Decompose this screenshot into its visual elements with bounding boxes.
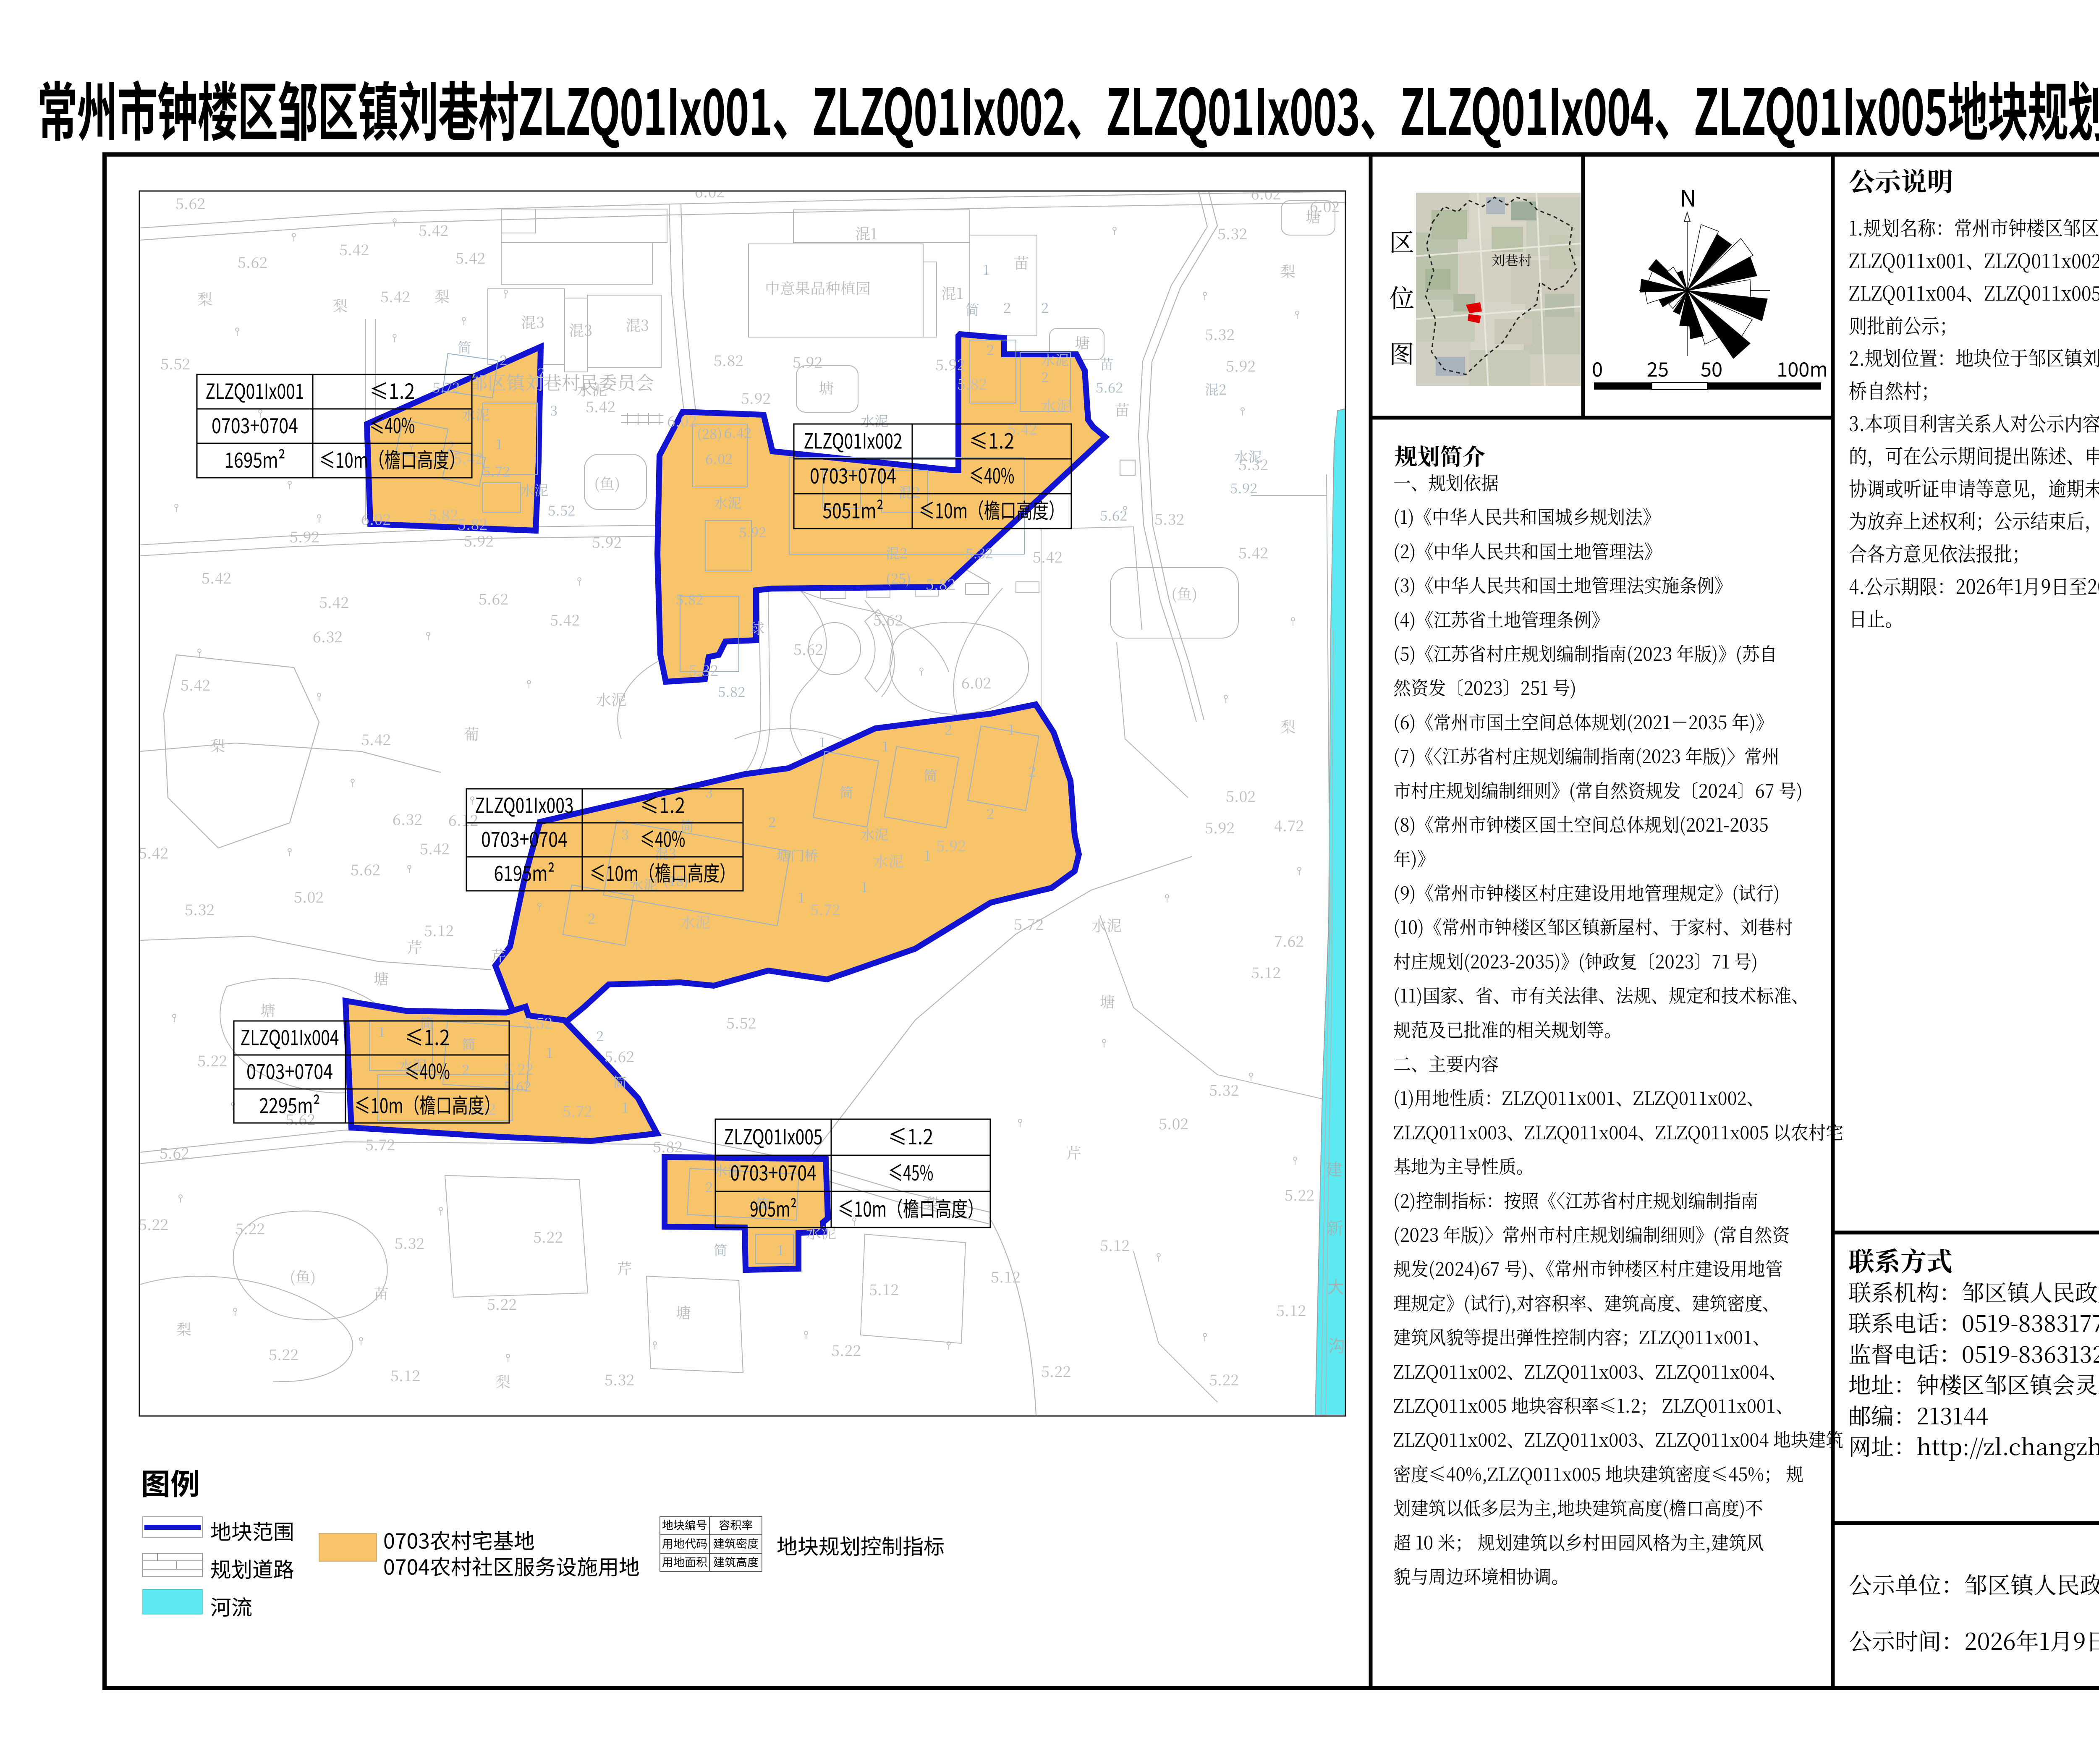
svg-text:5.52: 5.52 bbox=[523, 1012, 552, 1033]
svg-text:2: 2 bbox=[1003, 297, 1011, 317]
svg-text:苗: 苗 bbox=[1100, 354, 1114, 374]
svg-text:水泥: 水泥 bbox=[714, 492, 741, 512]
svg-text:水泥: 水泥 bbox=[1091, 914, 1122, 936]
svg-text:5.82: 5.82 bbox=[458, 513, 487, 534]
svg-text:0703+0704: 0703+0704 bbox=[810, 460, 896, 490]
svg-text:5.62: 5.62 bbox=[1096, 377, 1123, 397]
svg-text:6195m²: 6195m² bbox=[494, 857, 555, 887]
svg-text:5.22: 5.22 bbox=[1209, 1369, 1239, 1390]
svg-text:2: 2 bbox=[1041, 297, 1049, 317]
svg-text:5.92: 5.92 bbox=[793, 351, 822, 372]
svg-text:≤10m（檐口高度）: ≤10m（檐口高度） bbox=[354, 1089, 500, 1120]
svg-text:5.22: 5.22 bbox=[235, 1217, 265, 1239]
svg-text:5.82: 5.82 bbox=[428, 504, 458, 525]
svg-text:塘: 塘 bbox=[1100, 991, 1115, 1012]
svg-text:梨: 梨 bbox=[1280, 716, 1296, 737]
svg-text:5.42: 5.42 bbox=[455, 247, 485, 268]
svg-text:5.72: 5.72 bbox=[483, 461, 510, 481]
svg-text:5.42: 5.42 bbox=[139, 842, 168, 863]
svg-text:5.82: 5.82 bbox=[718, 681, 745, 701]
svg-text:水泥: 水泥 bbox=[873, 850, 903, 872]
svg-text:6.12: 6.12 bbox=[448, 809, 478, 830]
svg-text:2: 2 bbox=[1041, 366, 1049, 386]
svg-text:1: 1 bbox=[621, 1097, 629, 1117]
svg-text:5.12: 5.12 bbox=[424, 919, 454, 941]
svg-text:5051m²: 5051m² bbox=[823, 495, 884, 525]
svg-text:(鱼): (鱼) bbox=[1171, 583, 1197, 604]
svg-text:ZLZQ01Ix005: ZLZQ01Ix005 bbox=[724, 1120, 823, 1151]
svg-text:≤40%: ≤40% bbox=[370, 409, 415, 440]
svg-text:6.02: 6.02 bbox=[705, 448, 733, 468]
svg-text:5.92: 5.92 bbox=[290, 526, 319, 547]
svg-text:2: 2 bbox=[500, 350, 507, 369]
svg-text:5.42: 5.42 bbox=[1238, 542, 1268, 563]
svg-text:5.92: 5.92 bbox=[741, 387, 771, 408]
svg-text:5.42: 5.42 bbox=[361, 728, 391, 750]
svg-text:5.92: 5.92 bbox=[1226, 355, 1256, 376]
svg-text:水泥: 水泥 bbox=[861, 824, 888, 844]
svg-text:塘门桥: 塘门桥 bbox=[777, 845, 818, 865]
svg-text:1: 1 bbox=[546, 1042, 553, 1062]
svg-text:2: 2 bbox=[987, 803, 994, 823]
svg-text:水泥: 水泥 bbox=[521, 480, 548, 500]
svg-text:0703+0704: 0703+0704 bbox=[730, 1157, 817, 1187]
svg-text:简: 简 bbox=[613, 1072, 627, 1091]
svg-text:1: 1 bbox=[378, 1021, 385, 1041]
svg-text:水泥: 水泥 bbox=[596, 688, 626, 710]
svg-text:混2: 混2 bbox=[898, 482, 920, 502]
svg-text:6.32: 6.32 bbox=[313, 626, 343, 647]
svg-text:梨: 梨 bbox=[495, 1371, 510, 1392]
svg-text:5.42: 5.42 bbox=[1033, 546, 1063, 567]
svg-text:2: 2 bbox=[768, 811, 776, 831]
svg-text:3: 3 bbox=[705, 782, 713, 802]
svg-text:ZLZQ01Ix001: ZLZQ01Ix001 bbox=[206, 375, 304, 405]
svg-text:5.22: 5.22 bbox=[533, 1226, 563, 1247]
svg-text:2: 2 bbox=[945, 719, 952, 739]
svg-text:混3: 混3 bbox=[569, 319, 592, 340]
svg-text:5.32: 5.32 bbox=[1209, 1079, 1239, 1100]
svg-text:2: 2 bbox=[596, 1026, 604, 1045]
svg-text:ZLZQ01Ix002: ZLZQ01Ix002 bbox=[804, 425, 903, 455]
svg-text:5.32: 5.32 bbox=[1217, 222, 1247, 244]
svg-text:球: 球 bbox=[749, 617, 764, 639]
svg-text:1: 1 bbox=[819, 732, 826, 751]
svg-text:4.72: 4.72 bbox=[1274, 814, 1304, 836]
svg-text:≤10m（檐口高度）: ≤10m（檐口高度） bbox=[838, 1193, 984, 1223]
svg-text:5.92: 5.92 bbox=[1230, 478, 1257, 497]
svg-text:5.22: 5.22 bbox=[487, 1293, 517, 1314]
svg-text:5.92: 5.92 bbox=[592, 531, 622, 552]
svg-text:水泥: 水泥 bbox=[1234, 446, 1262, 466]
svg-text:6.02: 6.02 bbox=[361, 508, 391, 529]
svg-text:7.62: 7.62 bbox=[1274, 930, 1304, 951]
svg-text:水泥: 水泥 bbox=[462, 404, 489, 424]
svg-text:梨: 梨 bbox=[210, 735, 225, 756]
svg-text:5.82: 5.82 bbox=[676, 589, 703, 609]
svg-text:5.72: 5.72 bbox=[432, 377, 460, 397]
svg-text:5.62: 5.62 bbox=[238, 251, 267, 272]
svg-text:5.02: 5.02 bbox=[1226, 785, 1256, 806]
svg-text:6.02: 6.02 bbox=[1310, 195, 1340, 217]
svg-text:3: 3 bbox=[550, 400, 557, 420]
svg-text:5.82: 5.82 bbox=[926, 573, 955, 594]
svg-text:5.72: 5.72 bbox=[810, 898, 840, 920]
svg-text:≤10m（檐口高度）: ≤10m（檐口高度） bbox=[590, 857, 736, 887]
svg-text:5.42: 5.42 bbox=[181, 674, 210, 695]
svg-text:5.02: 5.02 bbox=[1159, 1112, 1188, 1134]
svg-text:5.22: 5.22 bbox=[831, 1339, 861, 1361]
svg-text:5.82: 5.82 bbox=[714, 349, 743, 371]
svg-text:用地代码: 用地代码 bbox=[662, 1535, 707, 1551]
svg-text:苗: 苗 bbox=[1014, 252, 1029, 273]
svg-text:0703+0704: 0703+0704 bbox=[481, 823, 568, 853]
svg-text:≤1.2: ≤1.2 bbox=[888, 1120, 934, 1151]
svg-text:5.62: 5.62 bbox=[479, 588, 508, 609]
svg-text:建: 建 bbox=[1326, 1157, 1343, 1180]
svg-text:5.12: 5.12 bbox=[869, 1278, 899, 1300]
svg-text:大: 大 bbox=[1327, 1274, 1344, 1298]
svg-text:2: 2 bbox=[705, 1177, 713, 1196]
svg-text:葡: 葡 bbox=[464, 723, 479, 744]
svg-text:建筑密度: 建筑密度 bbox=[713, 1535, 759, 1551]
svg-text:6.32: 6.32 bbox=[393, 808, 422, 830]
svg-text:简: 简 bbox=[840, 782, 853, 802]
svg-text:5.32: 5.32 bbox=[966, 543, 993, 563]
svg-text:N: N bbox=[1680, 180, 1696, 213]
svg-text:5.62: 5.62 bbox=[873, 609, 903, 630]
svg-text:5.92: 5.92 bbox=[936, 835, 966, 856]
svg-text:≤40%: ≤40% bbox=[640, 823, 686, 853]
svg-text:容积率: 容积率 bbox=[719, 1516, 753, 1533]
svg-text:简: 简 bbox=[924, 765, 937, 785]
svg-text:5.22: 5.22 bbox=[197, 1050, 227, 1071]
svg-text:≤10m（檐口高度）: ≤10m（檐口高度） bbox=[319, 444, 466, 474]
svg-text:5.12: 5.12 bbox=[1251, 961, 1281, 983]
svg-text:混3: 混3 bbox=[626, 314, 649, 335]
svg-text:6.02: 6.02 bbox=[1251, 183, 1281, 204]
svg-text:梨: 梨 bbox=[332, 295, 348, 316]
svg-text:混1: 混1 bbox=[941, 282, 963, 304]
svg-text:5.32: 5.32 bbox=[688, 659, 718, 680]
svg-text:水泥: 水泥 bbox=[1041, 395, 1071, 416]
svg-text:5.22: 5.22 bbox=[139, 1213, 168, 1235]
svg-text:苗: 苗 bbox=[1115, 399, 1130, 420]
svg-text:塘: 塘 bbox=[1075, 332, 1090, 353]
svg-text:芹: 芹 bbox=[617, 1257, 632, 1279]
svg-text:5.32: 5.32 bbox=[185, 898, 215, 920]
svg-text:5.32: 5.32 bbox=[395, 1232, 424, 1254]
svg-text:5.32: 5.32 bbox=[605, 1369, 634, 1390]
svg-text:混2: 混2 bbox=[1205, 379, 1226, 399]
svg-text:0703+0704: 0703+0704 bbox=[212, 409, 298, 440]
svg-text:≤40%: ≤40% bbox=[405, 1055, 450, 1086]
svg-text:5.12: 5.12 bbox=[1276, 1299, 1306, 1321]
svg-text:梨: 梨 bbox=[176, 1318, 191, 1340]
svg-text:梨: 梨 bbox=[434, 285, 450, 307]
svg-text:ZLZQ01Ix004: ZLZQ01Ix004 bbox=[241, 1021, 339, 1052]
svg-text:≤1.2: ≤1.2 bbox=[405, 1021, 450, 1052]
svg-text:5.82: 5.82 bbox=[653, 1136, 683, 1157]
svg-text:5.42: 5.42 bbox=[419, 219, 448, 241]
svg-text:混1: 混1 bbox=[855, 222, 877, 244]
svg-text:5.32: 5.32 bbox=[1154, 508, 1184, 529]
svg-text:简: 简 bbox=[714, 1240, 728, 1259]
svg-text:1: 1 bbox=[982, 259, 990, 279]
svg-text:(鱼): (鱼) bbox=[594, 472, 620, 494]
svg-text:2: 2 bbox=[987, 339, 994, 359]
svg-text:5.42: 5.42 bbox=[319, 591, 349, 612]
svg-text:5.72: 5.72 bbox=[365, 1133, 395, 1155]
svg-text:5.62: 5.62 bbox=[605, 1045, 634, 1067]
svg-text:苗: 苗 bbox=[374, 1282, 389, 1304]
svg-text:水泥: 水泥 bbox=[680, 911, 710, 932]
svg-text:5.62: 5.62 bbox=[84, 220, 114, 242]
svg-text:5.92: 5.92 bbox=[935, 353, 965, 375]
svg-text:刘巷村: 刘巷村 bbox=[1492, 250, 1532, 270]
svg-text:(28): (28) bbox=[697, 423, 722, 443]
svg-text:≤10m（檐口高度）: ≤10m（檐口高度） bbox=[919, 495, 1065, 525]
svg-text:5.82: 5.82 bbox=[957, 373, 987, 394]
svg-text:地块编号: 地块编号 bbox=[662, 1516, 707, 1533]
svg-text:1: 1 bbox=[1008, 719, 1015, 739]
svg-text:5.22: 5.22 bbox=[1285, 1184, 1314, 1205]
svg-text:中意果品种植园: 中意果品种植园 bbox=[765, 277, 871, 298]
svg-text:≤1.2: ≤1.2 bbox=[969, 425, 1015, 455]
svg-text:简: 简 bbox=[458, 337, 471, 357]
svg-text:5.62: 5.62 bbox=[351, 858, 380, 880]
svg-text:5.42: 5.42 bbox=[202, 567, 231, 588]
svg-text:5.52: 5.52 bbox=[548, 500, 575, 520]
svg-text:5.22: 5.22 bbox=[269, 1343, 298, 1365]
svg-text:ZLZQ01Ix003: ZLZQ01Ix003 bbox=[475, 789, 574, 819]
svg-text:5.92: 5.92 bbox=[739, 522, 766, 542]
svg-text:梨: 梨 bbox=[197, 288, 212, 309]
svg-text:5.62: 5.62 bbox=[504, 1076, 531, 1096]
svg-text:梨: 梨 bbox=[1280, 260, 1296, 282]
svg-text:6.42: 6.42 bbox=[724, 422, 751, 442]
svg-text:5.72: 5.72 bbox=[563, 1100, 592, 1121]
svg-text:1: 1 bbox=[882, 736, 889, 756]
svg-text:2295m²: 2295m² bbox=[259, 1089, 320, 1120]
svg-text:5.72: 5.72 bbox=[1014, 913, 1044, 934]
svg-text:5.62: 5.62 bbox=[160, 1142, 189, 1163]
svg-text:3: 3 bbox=[621, 824, 629, 844]
svg-text:1695m²: 1695m² bbox=[225, 444, 285, 474]
svg-text:5.12: 5.12 bbox=[390, 1364, 420, 1386]
svg-text:0: 0 bbox=[1592, 353, 1603, 382]
svg-text:5.52: 5.52 bbox=[160, 353, 190, 374]
svg-text:5.42: 5.42 bbox=[380, 285, 410, 307]
svg-text:塘: 塘 bbox=[819, 377, 834, 398]
svg-text:(25): (25) bbox=[886, 568, 911, 588]
svg-text:5.02: 5.02 bbox=[294, 886, 324, 907]
svg-text:5.42: 5.42 bbox=[420, 838, 450, 859]
svg-text:0703+0704: 0703+0704 bbox=[246, 1055, 333, 1086]
svg-text:5.92: 5.92 bbox=[1205, 817, 1235, 838]
svg-text:≤1.2: ≤1.2 bbox=[370, 375, 415, 405]
svg-text:芹: 芹 bbox=[1066, 1142, 1081, 1163]
svg-text:2: 2 bbox=[588, 908, 595, 928]
svg-text:建筑高度: 建筑高度 bbox=[713, 1553, 759, 1570]
svg-text:5.12: 5.12 bbox=[1100, 1234, 1130, 1256]
svg-text:≤40%: ≤40% bbox=[969, 460, 1015, 490]
svg-text:1: 1 bbox=[495, 434, 503, 453]
svg-text:5.22: 5.22 bbox=[1041, 1360, 1071, 1382]
svg-text:塘: 塘 bbox=[260, 999, 275, 1021]
svg-text:塘: 塘 bbox=[676, 1301, 691, 1323]
svg-text:邹区镇刘巷村民委员会: 邹区镇刘巷村民委员会 bbox=[469, 368, 654, 395]
svg-text:≤45%: ≤45% bbox=[888, 1157, 934, 1187]
svg-text:5.32: 5.32 bbox=[1205, 323, 1235, 345]
svg-text:2: 2 bbox=[1029, 761, 1036, 781]
svg-text:1: 1 bbox=[777, 1240, 784, 1259]
svg-text:塘: 塘 bbox=[374, 968, 389, 989]
svg-text:混3: 混3 bbox=[521, 311, 544, 332]
svg-text:5.42: 5.42 bbox=[339, 238, 369, 260]
svg-text:5.12: 5.12 bbox=[991, 1266, 1021, 1287]
svg-text:6.02: 6.02 bbox=[667, 410, 697, 431]
svg-text:1: 1 bbox=[924, 845, 931, 865]
svg-text:简: 简 bbox=[966, 299, 979, 319]
svg-text:1: 1 bbox=[861, 877, 868, 896]
svg-text:≤1.2: ≤1.2 bbox=[640, 789, 686, 819]
svg-text:芹: 芹 bbox=[407, 936, 422, 958]
svg-text:(鱼): (鱼) bbox=[290, 1266, 316, 1287]
svg-text:1: 1 bbox=[798, 887, 805, 907]
svg-text:905m²: 905m² bbox=[750, 1193, 797, 1223]
svg-text:50: 50 bbox=[1701, 353, 1722, 382]
svg-text:混2: 混2 bbox=[886, 543, 907, 563]
svg-text:用地面积: 用地面积 bbox=[662, 1553, 707, 1570]
svg-text:25: 25 bbox=[1647, 353, 1669, 382]
svg-text:100m: 100m bbox=[1777, 353, 1828, 382]
svg-text:新: 新 bbox=[1327, 1215, 1343, 1239]
svg-text:芹: 芹 bbox=[491, 945, 506, 966]
svg-text:5.52: 5.52 bbox=[726, 1012, 756, 1033]
svg-text:5.62: 5.62 bbox=[793, 638, 823, 660]
svg-text:沟: 沟 bbox=[1328, 1333, 1345, 1357]
svg-text:5.42: 5.42 bbox=[586, 395, 615, 417]
svg-text:2: 2 bbox=[462, 1059, 469, 1079]
svg-text:简: 简 bbox=[462, 1034, 476, 1054]
svg-text:5.42: 5.42 bbox=[550, 609, 580, 630]
svg-text:6.02: 6.02 bbox=[961, 672, 991, 693]
svg-text:5.62: 5.62 bbox=[175, 192, 205, 214]
